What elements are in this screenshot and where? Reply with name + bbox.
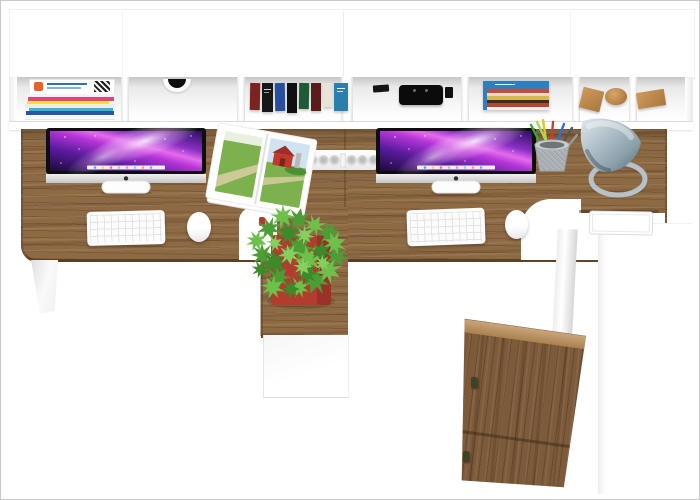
book-stack-cover	[487, 81, 549, 89]
desk-lamp	[573, 117, 651, 201]
cabinet-knob	[463, 451, 469, 462]
hutch-divider	[629, 77, 637, 121]
tilted-cabinet	[441, 317, 589, 489]
imac-stand	[432, 181, 480, 193]
magazine-logo-mark	[34, 82, 43, 91]
book-stack	[483, 81, 549, 110]
mouse-right	[505, 210, 528, 239]
imac-stand	[102, 181, 150, 193]
magazine-cover-line	[47, 83, 87, 85]
magazine-checker-corner	[94, 81, 110, 92]
hutch-top-panel	[9, 9, 695, 79]
mouse-left	[187, 212, 211, 242]
book-spine	[275, 83, 285, 111]
magazine-spine	[25, 115, 115, 120]
magazine-top-cover	[29, 79, 115, 95]
cable-grommet-hole	[168, 79, 186, 88]
wooden-cylinder	[605, 88, 627, 105]
cabinet-door-seam	[455, 429, 586, 450]
book-spine	[262, 83, 273, 112]
book-spine	[250, 83, 260, 110]
keyboard-right	[406, 208, 485, 247]
apple-logo-icon	[124, 176, 128, 180]
camera-lens-dot	[425, 89, 428, 92]
camera-lens-dot	[413, 89, 416, 92]
book-spine	[334, 83, 348, 111]
hutch-divider	[237, 77, 245, 121]
hutch-side-wall-left	[9, 77, 17, 121]
hutch-divider	[121, 77, 129, 121]
imac-left	[45, 127, 207, 197]
hutch-top-seam	[122, 11, 123, 76]
power-socket	[318, 155, 329, 166]
books-row	[250, 83, 348, 113]
book-spine	[311, 83, 321, 111]
pencil-cup-opening	[540, 142, 565, 149]
camera-strap	[373, 84, 389, 92]
hutch-divider	[572, 77, 580, 121]
book-spine	[287, 83, 297, 113]
book-spine	[299, 83, 309, 109]
cabinet-knob	[471, 377, 477, 388]
apple-logo-icon	[454, 176, 458, 180]
hutch-top-seam	[570, 11, 571, 76]
hutch-side-wall-right	[685, 77, 693, 121]
potted-plant	[245, 199, 353, 317]
desk-leg-left	[31, 260, 58, 314]
keyboard-left	[87, 210, 166, 246]
book-spine	[323, 83, 333, 107]
plant-foliage	[245, 200, 353, 303]
hutch-divider	[461, 77, 469, 121]
power-socket	[357, 155, 368, 166]
camera-body	[399, 85, 443, 105]
book-stack-stripe	[487, 107, 549, 110]
camera-accessory	[445, 87, 453, 98]
cabinet-side-leg	[552, 229, 578, 336]
return-cabinet-front	[263, 335, 349, 398]
power-socket	[346, 155, 357, 166]
hutch-top-seam	[343, 11, 344, 76]
desk-tray	[589, 210, 653, 235]
imac-right	[375, 127, 537, 197]
power-strip-connector	[340, 153, 347, 168]
power-socket	[329, 155, 340, 166]
product-render-canvas	[0, 0, 700, 500]
magazine-cover-line	[47, 87, 81, 89]
right-return-panel	[598, 223, 692, 494]
